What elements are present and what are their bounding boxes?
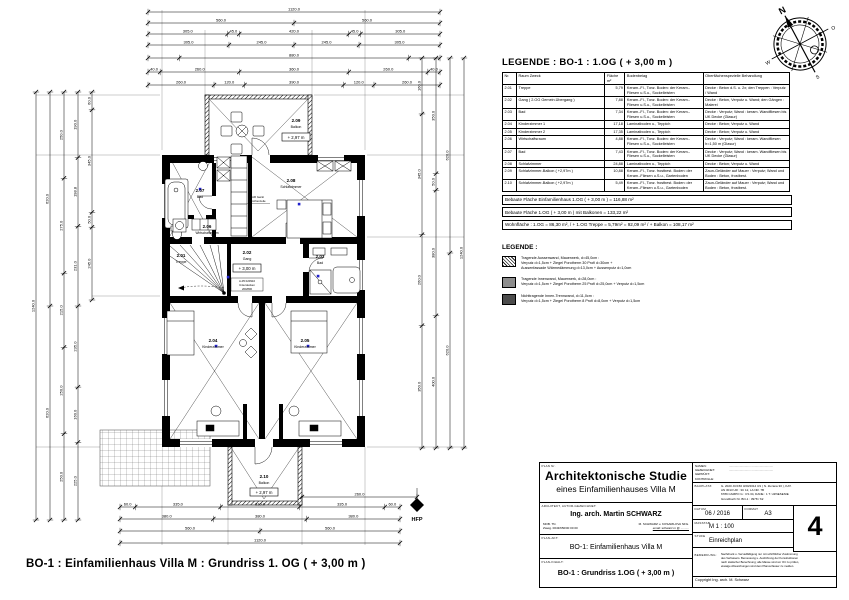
legend-cell-name: Schlafzimmer-Balkon ( +2,97m ): [517, 168, 605, 180]
dimension-value: 380.0: [430, 247, 435, 258]
dimension-chains: 1120.0560.0560.0305.045.0420.045.0305.03…: [30, 7, 467, 547]
dimension-value: 60.0: [388, 502, 397, 507]
legend-cell-surf: Decke : Verputz; Wand : keram. Wandflies…: [703, 148, 789, 160]
legend-table-header: Nr.Raum ZweckFläche m²BodenbelagOberfläc…: [503, 73, 790, 85]
copyright: Copyright Ing. arch. M. Schwarz: [695, 578, 834, 582]
gang-note-3: 200/800: [242, 287, 253, 291]
dimension-value: 345.0: [86, 155, 91, 166]
dimension-value: 345.0: [416, 169, 421, 180]
dimension-value: 305.0: [183, 40, 194, 45]
level-balkon-bottom: + 2,97 m: [256, 490, 273, 495]
legend-col-header: Bodenbelag: [625, 73, 703, 85]
dimension-value: 620.0: [44, 193, 49, 204]
dimension-value: 231.0: [72, 260, 77, 271]
dimension-value: 1240.0: [30, 299, 35, 312]
dimension-value: 305.0: [395, 29, 406, 34]
legend-cell-nr: 2.02: [503, 97, 517, 109]
svg-text:Balkon: Balkon: [259, 481, 270, 485]
legend-cell-num: 17,35: [605, 128, 625, 136]
dimension-value: 260.0: [195, 67, 206, 72]
dimension-value: 40.0: [150, 67, 159, 72]
dimension-value: 560.0: [185, 526, 196, 531]
legend-cell-surf: Zaun-Geländer auf Mauer : Verputz; Wand …: [703, 168, 789, 180]
legend-row: 2.08Schlafzimmer24,88Laminatboden u., Te…: [503, 160, 790, 168]
dimension-value: 40.0: [430, 67, 439, 72]
area-summary-line: Bebaute Fläche 1.OG ( + 3,00 m ) mit Bal…: [502, 207, 792, 217]
dimension-value: 160.0: [416, 80, 421, 91]
legend-row: 2.10Schlafzimmer-Balkon ( +2,97m )5,49Ke…: [503, 180, 790, 192]
svg-text:2.01: 2.01: [177, 253, 186, 258]
dimension-value: 620.0: [44, 407, 49, 418]
contact-right: M. SCHWARZ u. KOSARILOVA NFG.email: schw…: [639, 522, 689, 530]
legend-cell-num: 7,34: [605, 109, 625, 121]
legend-col-header: Oberflächenspezielle Behandlung: [703, 73, 789, 85]
dimension-value: 390.0: [289, 80, 300, 85]
dimension-value: 198.8: [72, 186, 77, 197]
legend-cell-floor: Keram.-Fl., Tonz. Boden: der Keram.-Flie…: [625, 109, 703, 121]
wall-legend-item: Tragende Innenwand, Mauerwerk, d=28,0cm …: [502, 277, 794, 288]
hfp-marker: HFP: [410, 488, 424, 523]
svg-text:2.08: 2.08: [287, 178, 296, 183]
legend-cell-surf: Decke : Beton d.S. u. 2x; den Treppen : …: [703, 85, 789, 97]
legend-cell-name: Bad: [517, 109, 605, 121]
pergola-grid: [100, 430, 210, 486]
contact-left: MOB. TN.Zweig. 0043/650/00 00 00: [543, 522, 578, 530]
legend-cell-floor: Laminatboden u., Teppich: [625, 128, 703, 136]
compass-n: N: [777, 5, 787, 17]
legend-cell-nr: 2.10: [503, 180, 517, 192]
svg-text:Balkon: Balkon: [291, 125, 302, 129]
legend-row: 2.04Kinderzimmer 117,18Laminatboden u., …: [503, 121, 790, 129]
dimension-value: 335.0: [173, 502, 184, 507]
legend-cell-nr: 2.08: [503, 160, 517, 168]
legend-cell-name: Bad: [517, 148, 605, 160]
dimension-value: 360.0: [289, 67, 300, 72]
stufe-value: Einreichplan: [695, 538, 791, 544]
bemerkung-lines: Nachdruck u. Vervielfältigung nur mit sc…: [721, 553, 834, 569]
legend-cell-surf: Decke : Beton, Verputz u. Wand; den Gäng…: [703, 97, 789, 109]
wall-legend-item: Tragende Aussenwand, Mauerwerk, d=45,0cm…: [502, 256, 794, 271]
svg-text:Bad: Bad: [197, 195, 203, 199]
legend-block: LEGENDE : BO-1 : 1.OG ( + 3,00 m ) Nr.Ra…: [502, 57, 794, 311]
legend-cell-floor: Keram.-Fl., Tonz. frostbest. Boden: der …: [625, 168, 703, 180]
sheet-number: 4: [794, 506, 836, 546]
svg-text:Schlafzimmer: Schlafzimmer: [280, 185, 302, 189]
dimension-value: 380.0: [348, 514, 359, 519]
legend-cell-nr: 2.04: [503, 121, 517, 129]
svg-text:2.03: 2.03: [316, 254, 325, 259]
dimension-value: 250.0: [58, 129, 63, 140]
dimension-value: 50.0: [86, 215, 91, 224]
legend-row: 2.03Bad7,34Keram.-Fl., Tonz. Boden: der …: [503, 109, 790, 121]
legend-cell-surf: Decke : Beton; Verputz u. Wand: [703, 128, 789, 136]
masstab-label: MASSTAB: [695, 521, 711, 525]
legend-cell-nr: 2.07: [503, 148, 517, 160]
area-summary: Bebaute Fläche Einfamilienhaus 1.OG ( + …: [502, 195, 794, 230]
dimension-value: 350.0: [430, 110, 435, 121]
svg-text:2.04: 2.04: [209, 338, 218, 343]
datum-label: DATUM: [695, 507, 706, 511]
dimension-value: 1120.0: [288, 7, 301, 12]
hfp-label: HFP: [412, 517, 423, 523]
dimension-value: 260.0: [416, 274, 421, 285]
plannr-label: PLAN Nr.: [542, 464, 556, 468]
drawing-sheet: HFP 2.09 Balkon + 2,97 m 2.07 Bad 2.08 S…: [0, 0, 849, 600]
dimension-value: 190.0: [72, 119, 77, 130]
format-label: FORMAT: [745, 507, 759, 511]
legend-row: 2.09Schlafzimmer-Balkon ( +2,97m )10,88K…: [503, 168, 790, 180]
legend-cell-floor: Keram.-Fl., Tonz. Boden: der Keram.-Flie…: [625, 85, 703, 97]
dimension-value: 560.0: [362, 18, 373, 23]
legend-cell-floor: Keram.-Fl., Tonz. Boden: der Keram.-Flie…: [625, 136, 703, 148]
datum-value: 06 / 2016: [695, 511, 740, 517]
dimension-value: 380.0: [255, 514, 266, 519]
legend-cell-floor: Laminatboden u., Teppich: [625, 121, 703, 129]
legend-col-header: Nr.: [503, 73, 517, 85]
studio-title: Architektonische Studie: [542, 469, 690, 483]
dimension-value: 1240.0: [458, 246, 463, 259]
wall-legend-item: Nichttragende Innen-Trennwand, d=11,0cm …: [502, 294, 794, 305]
dimension-value: 245.0: [86, 258, 91, 269]
legend-cell-num: 4,88: [605, 136, 625, 148]
area-summary-line: Bebaute Fläche Einfamilienhaus 1.OG ( + …: [502, 195, 792, 205]
legend-col-header: Raum Zweck: [517, 73, 605, 85]
schlaf-note-2: Küchenzeile: [250, 199, 266, 203]
legend-cell-num: 17,18: [605, 121, 625, 129]
wall-legend-text: Tragende Aussenwand, Mauerwerk, d=45,0cm…: [521, 256, 631, 271]
wall-hatch-swatch: [502, 277, 516, 288]
room-legend-table: Nr.Raum ZweckFläche m²BodenbelagOberfläc…: [502, 72, 790, 192]
legend-cell-name: Kinderzimmer 1: [517, 121, 605, 129]
legend-cell-num: 7,43: [605, 148, 625, 160]
legend-cell-name: Schlafzimmer-Balkon ( +2,97m ): [517, 180, 605, 192]
svg-text:2.02: 2.02: [243, 250, 252, 255]
compass-e: O: [830, 25, 836, 32]
dimension-value: 260.0: [176, 80, 187, 85]
legend-row: 2.05Kinderzimmer 217,35Laminatboden u., …: [503, 128, 790, 136]
legend-cell-nr: 2.05: [503, 128, 517, 136]
wall-hatch-swatch: [502, 294, 516, 305]
svg-text:Bad: Bad: [317, 261, 323, 265]
dimension-value: 305.0: [395, 40, 406, 45]
svg-text:Gang: Gang: [243, 257, 252, 261]
dimension-value: 120.0: [354, 80, 365, 85]
legend-cell-surf: Zaun-Geländer auf Mauer : Verputz; Wand …: [703, 180, 789, 192]
legend-cell-nr: 2.01: [503, 85, 517, 97]
dimension-value: 260.0: [354, 492, 365, 497]
legend-cell-name: Wirtschaftsraum: [517, 136, 605, 148]
dimension-value: 335.0: [337, 502, 348, 507]
wall-hatch-swatch: [502, 256, 516, 267]
legend-cell-nr: 2.06: [503, 136, 517, 148]
wall-legend-text: Nichttragende Innen-Trennwand, d=11,0cm …: [521, 294, 640, 304]
wall-legend-text: Tragende Innenwand, Mauerwerk, d=28,0cm …: [521, 277, 644, 287]
legend-row: 2.02Gang ( 2.OG Gemein.Übergang )7,88Ker…: [503, 97, 790, 109]
dimension-value: 50.0: [430, 177, 435, 186]
legend-row: 2.01Treppe5,79Keram.-Fl., Tonz. Boden: d…: [503, 85, 790, 97]
architect-name: Ing. arch. Martin SCHWARZ: [542, 511, 690, 518]
dimension-value: 260.0: [402, 80, 413, 85]
dimension-value: 620.0: [444, 345, 449, 356]
dimension-value: 215.0: [58, 305, 63, 316]
legend-cell-surf: Decke : Verputz; Wand : keram. Wandflies…: [703, 109, 789, 121]
legend-cell-surf: Decke : Beton; Verputz u. Wand: [703, 160, 789, 168]
legend-row: 2.07Bad7,43Keram.-Fl., Tonz. Boden: der …: [503, 148, 790, 160]
dimension-value: 275.0: [58, 220, 63, 231]
svg-text:2.06: 2.06: [203, 224, 212, 229]
dimension-value: 305.0: [183, 29, 194, 34]
drawing-name: BO-1 : Grundriss 1.OG ( + 3,00 m ): [542, 568, 690, 577]
dimension-value: 225.0: [72, 475, 77, 486]
legend-cell-name: Schlafzimmer: [517, 160, 605, 168]
dimension-value: 160.0: [72, 409, 77, 420]
stufe-label: STUFE: [695, 534, 706, 538]
architect-label: ARCHITEKT, AUTOR-GEZEICHNET:: [542, 504, 597, 508]
svg-text:Kinderzimmer: Kinderzimmer: [294, 345, 316, 349]
dimension-value: 1120.0: [254, 538, 267, 543]
bauplatz-label: BAUPLATZ:: [695, 484, 713, 488]
legend-cell-num: 5,79: [605, 85, 625, 97]
legend-col-header: Fläche m²: [605, 73, 625, 85]
dimension-value: 420.0: [289, 29, 300, 34]
legend-cell-num: 5,49: [605, 180, 625, 192]
studio-subtitle: eines Einfamilienhauses Villa M: [542, 484, 690, 494]
legend-cell-nr: 2.03: [503, 109, 517, 121]
dimension-value: 620.0: [444, 150, 449, 161]
project-name: BO-1: Einfamilienhaus Villa M: [542, 544, 690, 551]
legend-cell-num: 10,88: [605, 168, 625, 180]
dimension-value: 560.0: [216, 18, 227, 23]
title-block: Architektonische Studie eines Einfamilie…: [539, 462, 837, 588]
svg-text:2.10: 2.10: [260, 474, 269, 479]
dimension-value: 60.0: [124, 502, 133, 507]
legend-title: LEGENDE : BO-1 : 1.OG ( + 3,00 m ): [502, 57, 794, 68]
legend-cell-surf: Decke : Verputz; Wand : keram. Wandflies…: [703, 136, 789, 148]
bemerkung-label: BEMERKUNG:: [695, 553, 717, 557]
dimension-value: 245.0: [322, 40, 333, 45]
bauplatz-lines: G. 2020 JC/150 3/20/2014 3/1 ( N. Zuzana…: [721, 484, 834, 501]
dimension-value: 245.0: [256, 40, 267, 45]
legend-cell-floor: Keram.-Fl., Tonz. Boden: der Keram.-Flie…: [625, 148, 703, 160]
legend-cell-floor: Keram.-Fl., Tonz. Boden: der Keram.-Flie…: [625, 97, 703, 109]
svg-text:2.07: 2.07: [196, 188, 205, 193]
dimension-value: 45.0: [351, 29, 360, 34]
legend-cell-name: Gang ( 2.OG Gemein.Übergang ): [517, 97, 605, 109]
dimension-value: 350.0: [416, 381, 421, 392]
legend-cell-surf: Decke : Beton; Verputz u. Wand: [703, 121, 789, 129]
dimension-value: 260.0: [383, 67, 394, 72]
legend-cell-num: 24,88: [605, 160, 625, 168]
legend-cell-name: Treppe: [517, 85, 605, 97]
area-summary-line: Wohnfläche : 1.OG = 86,30 m², / + 1.OG T…: [502, 220, 792, 230]
dimension-value: 250.0: [58, 385, 63, 396]
wall-legend: LEGENDE : Tragende Aussenwand, Mauerwerk…: [502, 244, 794, 305]
dimension-value: 235.0: [72, 341, 77, 352]
compass-s: S: [815, 74, 821, 81]
legend-row: 2.06Wirtschaftsraum4,88Keram.-Fl., Tonz.…: [503, 136, 790, 148]
legend-cell-floor: Laminatboden u., Teppich: [625, 160, 703, 168]
wall-legend-title: LEGENDE :: [502, 244, 794, 251]
level-og: + 3,00 m: [239, 266, 256, 271]
dimension-value: 560.0: [325, 526, 336, 531]
svg-text:Wirtschaftsraum: Wirtschaftsraum: [195, 231, 218, 235]
legend-cell-num: 7,88: [605, 97, 625, 109]
format-value: A3: [745, 511, 791, 517]
dimension-value: 310.0: [255, 502, 266, 507]
dimension-value: 380.0: [162, 514, 173, 519]
legend-cell-name: Kinderzimmer 2: [517, 128, 605, 136]
names-labels: NAMEN:GEZEICHNET:GEPRÜFT:KONTROLLE:: [695, 464, 729, 481]
dimension-value: 60.0: [86, 96, 91, 105]
dimension-value: 250.0: [58, 471, 63, 482]
stair: [164, 245, 226, 295]
legend-cell-nr: 2.09: [503, 168, 517, 180]
drawing-label: PLAN-INHALT:: [542, 560, 564, 564]
project-label: PLAN-AKT:: [542, 536, 559, 540]
svg-text:2.09: 2.09: [292, 118, 301, 123]
dimension-value: 400.0: [430, 376, 435, 387]
floor-plan: HFP 2.09 Balkon + 2,97 m 2.07 Bad 2.08 S…: [0, 0, 500, 600]
sheet-caption: BO-1 : Einfamilienhaus Villa M : Grundri…: [26, 558, 366, 570]
level-balkon-top: + 2,97 m: [288, 135, 305, 140]
svg-text:Treppe: Treppe: [176, 260, 187, 264]
names-dots: .......................... .............…: [729, 464, 834, 481]
dimension-value: 45.0: [229, 29, 238, 34]
dimension-value: 120.0: [224, 80, 235, 85]
legend-cell-floor: Keram.-Fl., Tonz. frostbest. Boden: der …: [625, 180, 703, 192]
dimension-value: 880.0: [289, 53, 300, 58]
svg-text:Kinderzimmer: Kinderzimmer: [202, 345, 224, 349]
svg-text:2.05: 2.05: [301, 338, 310, 343]
